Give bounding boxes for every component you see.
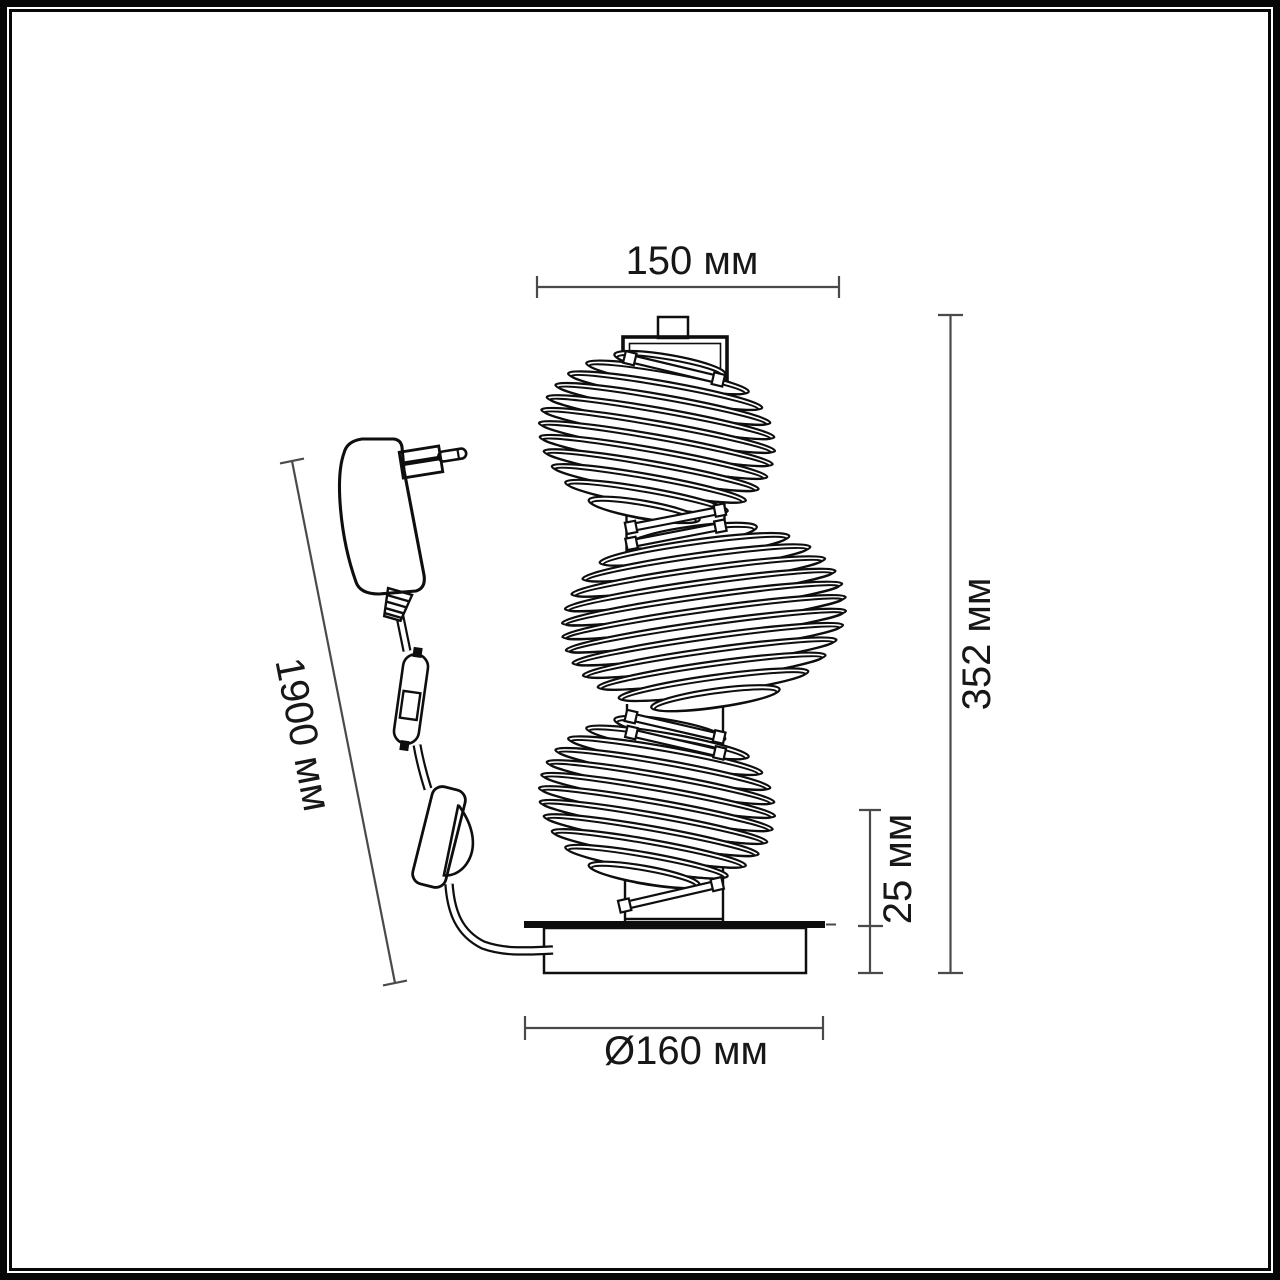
technical-drawing: 150 мм 352 мм 25 мм Ø160 мм 1900 мм xyxy=(0,0,1280,1280)
power-cord xyxy=(399,612,553,951)
dimension-base-diameter: Ø160 мм xyxy=(525,1016,823,1073)
dimension-total-height: 352 мм xyxy=(938,315,999,973)
drawing-sheet: 150 мм 352 мм 25 мм Ø160 мм 1900 мм xyxy=(0,0,1280,1280)
lamp-base-body xyxy=(544,928,806,973)
lamp-top-knob xyxy=(658,317,688,338)
dim-label-top-width: 150 мм xyxy=(626,239,759,283)
dimension-base-height: 25 мм xyxy=(858,810,920,973)
dim-label-cord-length: 1900 мм xyxy=(266,654,339,815)
dim-label-base-height: 25 мм xyxy=(876,814,920,925)
plug-prongs xyxy=(399,442,468,478)
dim-label-base-diameter: Ø160 мм xyxy=(604,1029,768,1073)
inline-connector xyxy=(391,646,430,752)
dim-label-total-height: 352 мм xyxy=(955,578,999,711)
power-switch xyxy=(410,784,485,894)
dimension-top-width: 150 мм xyxy=(537,239,839,298)
lamp-shade-bottom xyxy=(526,700,788,905)
dimension-cord-length: 1900 мм xyxy=(266,459,407,986)
lamp-shade-middle xyxy=(550,506,859,727)
